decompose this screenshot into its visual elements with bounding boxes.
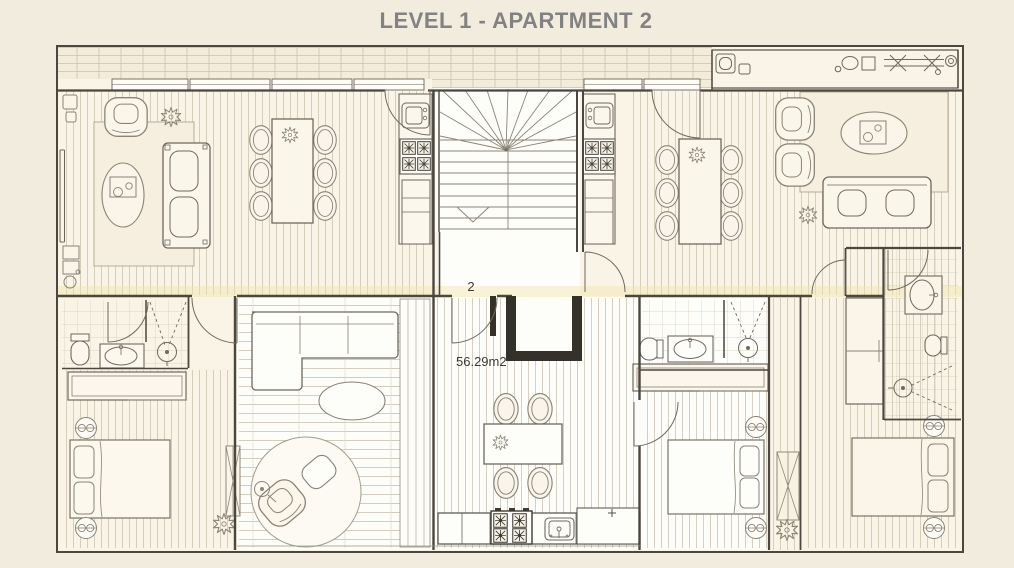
wardrobe-icon: [846, 298, 883, 404]
coffee-table-icon: [102, 163, 144, 227]
dining-chair-icon: [250, 159, 273, 188]
planter-icon: [226, 446, 240, 516]
armchair-icon: [776, 98, 815, 140]
dining-chair-icon: [528, 394, 552, 425]
armchair-icon: [776, 144, 815, 186]
coffee-table-icon: [841, 112, 907, 154]
dining-chair-icon: [494, 468, 518, 499]
bedside-lamp-icon: [76, 518, 97, 539]
planter-icon: [777, 452, 799, 520]
dining-chair-icon: [314, 126, 337, 155]
kitchen-left: [399, 94, 432, 244]
armchair-icon: [105, 98, 147, 137]
oval-table-icon: [319, 382, 385, 420]
bathroom-sink-icon: [905, 276, 942, 314]
floor-plan-page: LEVEL 1 - APARTMENT 2: [0, 0, 1014, 568]
bedside-lamp-icon: [746, 417, 767, 438]
sofa-icon: [163, 143, 210, 248]
bed-icon: [70, 440, 170, 518]
bed-icon: [668, 440, 764, 514]
dining-chair-icon: [250, 126, 273, 155]
dining-chair-icon: [314, 159, 337, 188]
toilet-icon: [71, 334, 89, 365]
bedside-lamp-icon: [924, 518, 945, 539]
bedside-lamp-icon: [76, 418, 97, 439]
dining-set-right: [656, 139, 743, 244]
fridge-icon: [585, 180, 613, 244]
dining-table-icon: [484, 424, 562, 464]
dining-chair-icon: [656, 212, 679, 241]
dining-table-icon: [679, 139, 721, 244]
wardrobe-icon: [633, 364, 768, 391]
kitchen-counter-icon: [438, 508, 640, 544]
dining-chair-icon: [314, 192, 337, 221]
dining-chair-icon: [656, 146, 679, 175]
kitchen-right: [583, 94, 615, 244]
bedside-lamp-icon: [746, 518, 767, 539]
dining-chair-icon: [720, 146, 743, 175]
dining-chair-icon: [494, 394, 518, 425]
dining-chair-icon: [720, 212, 743, 241]
bathroom-sink-icon: [100, 344, 144, 368]
floor-plan-canvas: LEVEL 1 - APARTMENT 2: [0, 0, 1014, 568]
toilet-icon: [925, 335, 947, 356]
kitchen-sink-icon: [545, 518, 574, 540]
wardrobe-icon: [68, 372, 186, 400]
stove-burner-icon: [491, 508, 532, 544]
stove-burner-icon: [583, 139, 615, 174]
bathroom-sink-icon: [668, 336, 713, 362]
toilet-icon: [640, 338, 663, 360]
dining-chair-icon: [720, 179, 743, 208]
dining-table-icon: [272, 119, 313, 223]
corridor-top-right: [712, 50, 958, 88]
plan-title: LEVEL 1 - APARTMENT 2: [380, 8, 653, 33]
dining-set-left: [250, 119, 337, 223]
sofa-icon: [823, 177, 931, 228]
kitchen-sink-icon: [402, 103, 429, 128]
bed-icon: [852, 438, 954, 516]
dining-chair-icon: [528, 468, 552, 499]
stove-burner-icon: [400, 139, 432, 174]
kitchen-sink-icon: [586, 103, 613, 128]
dining-chair-icon: [250, 192, 273, 221]
building: 2 56.29m2: [57, 46, 963, 552]
dining-chair-icon: [656, 179, 679, 208]
apartment-number-label: 2: [467, 279, 474, 294]
wardrobe-icon: [400, 299, 430, 547]
fridge-icon: [402, 180, 430, 244]
apartment-area-label: 56.29m2: [456, 354, 507, 369]
